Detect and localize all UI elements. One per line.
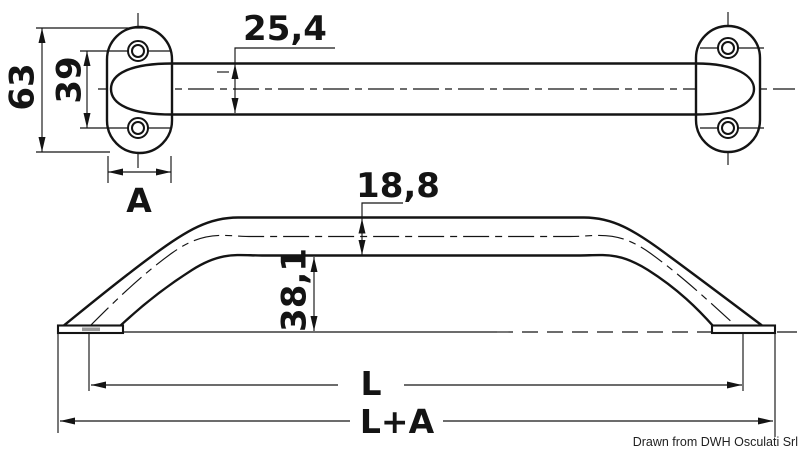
technical-drawing-page: 63 39 25,4 A [0, 0, 800, 449]
screw-hole [128, 41, 148, 61]
rail-centerline [90, 235, 736, 326]
rail-outer-edge [62, 218, 764, 328]
handrail-drawing: 63 39 25,4 A [0, 0, 800, 449]
dim-l-plus-a-label: L+A [360, 402, 435, 441]
dim-tube-height: 18,8 [356, 166, 440, 255]
dim-length-centers: L [91, 364, 742, 403]
dim-hole-spacing: 39 [49, 51, 90, 128]
dim-38-1-label: 38,1 [274, 248, 314, 332]
base-flange-right [712, 326, 775, 334]
dim-rail-height: 38,1 [274, 248, 317, 332]
credit-text: Drawn from DWH Osculati Srl [633, 435, 798, 449]
screw-hole [718, 38, 738, 58]
dim-tube-width: 25,4 [217, 9, 335, 113]
dim-25-4-label: 25,4 [243, 9, 327, 49]
dim-flange-width: A [108, 156, 171, 220]
dim-a-label: A [126, 181, 152, 220]
side-view: 18,8 38,1 L L+A [58, 166, 797, 441]
dim-63-label: 63 [2, 63, 42, 110]
flange-section-shading [82, 328, 100, 332]
dim-l-label: L [360, 364, 381, 403]
dim-18-8-label: 18,8 [356, 166, 440, 206]
rail-inner-edge [119, 255, 714, 327]
screw-hole [718, 118, 738, 138]
dim-39-label: 39 [49, 56, 89, 103]
screw-hole [128, 118, 148, 138]
